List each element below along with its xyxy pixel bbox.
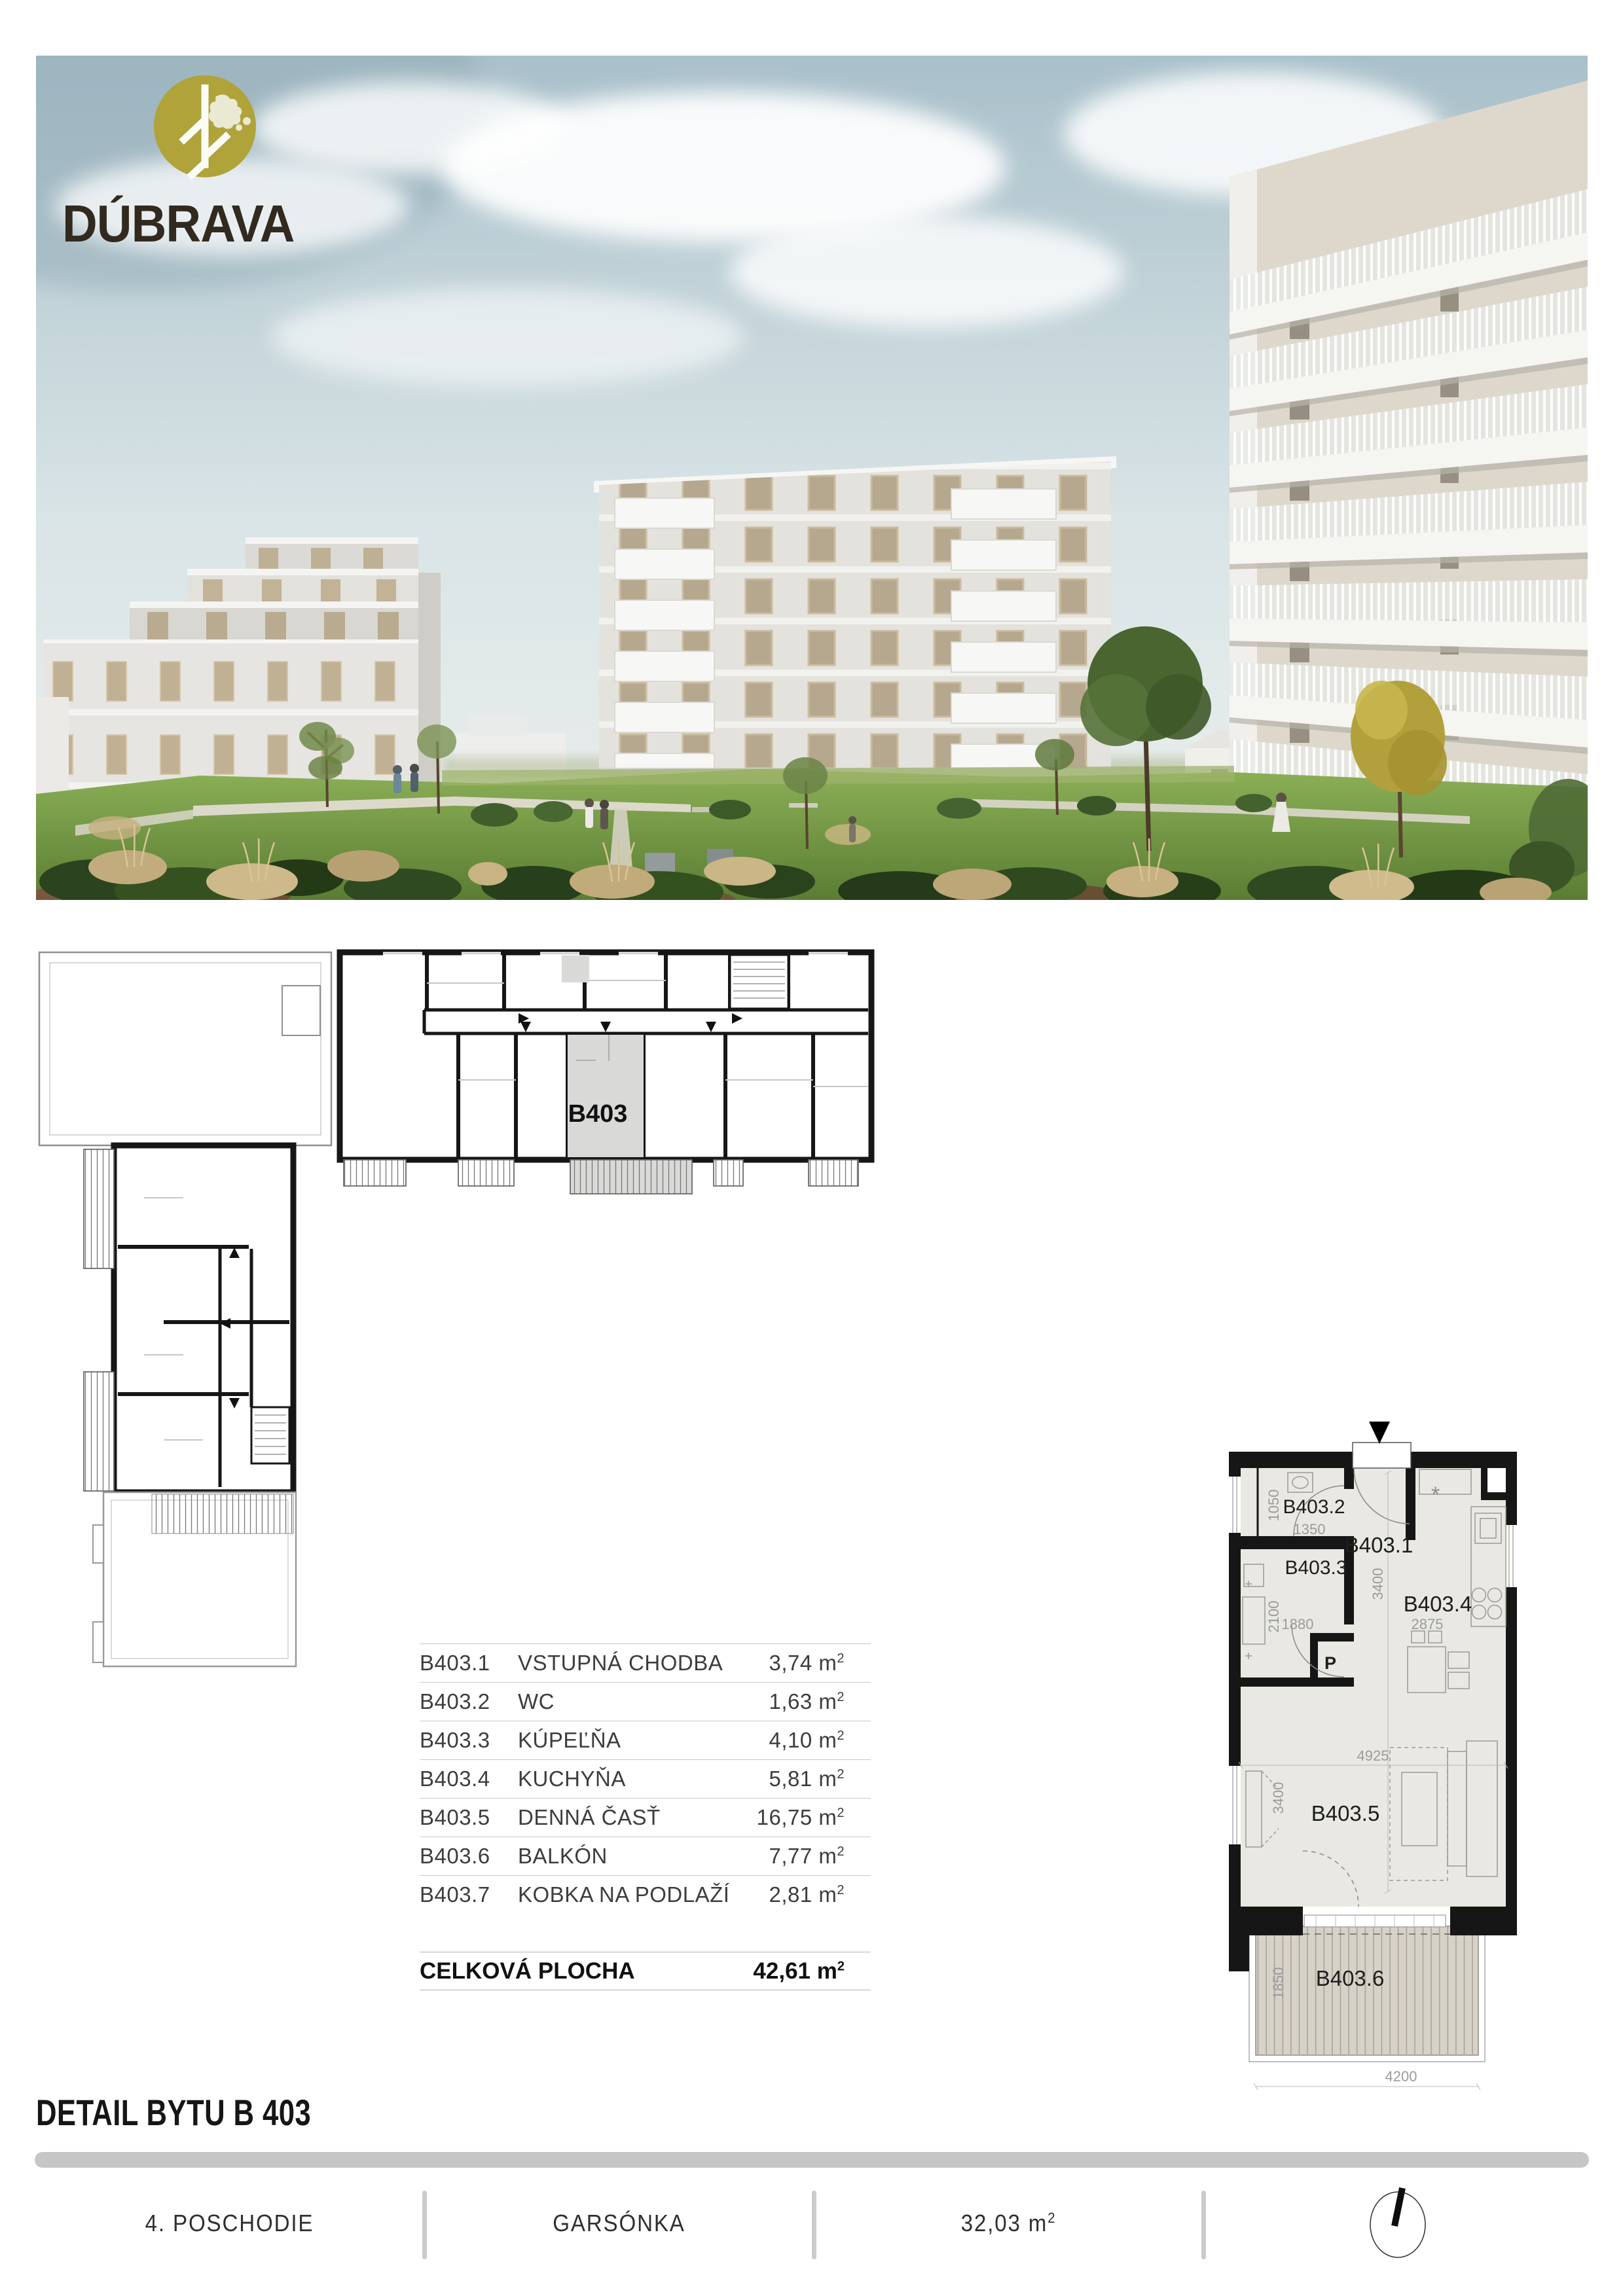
building-side-wing: [84, 1145, 293, 1492]
room-label-closet: P: [1324, 1653, 1336, 1673]
room-code: B403.3: [420, 1728, 518, 1753]
room-code: B403.4: [420, 1767, 518, 1791]
entrance-door: [1353, 1443, 1411, 1468]
room-label-balcony: B403.6: [1316, 1966, 1385, 1990]
room-area: 2,81 m2: [769, 1882, 871, 1907]
unit-label: B403: [568, 1100, 628, 1128]
terrace-outline: [93, 1492, 296, 1666]
balconies: [344, 1160, 858, 1194]
footer-layout-type: GARSÓNKA: [440, 2210, 798, 2237]
room-label-hall: B403.1: [1345, 1533, 1413, 1557]
table-row: B403.5 DENNÁ ČASŤ 16,75 m2: [420, 1798, 871, 1837]
dim-bath-width: 1880: [1282, 1616, 1314, 1632]
table-row: B403.6 BALKÓN 7,77 m2: [420, 1837, 871, 1875]
room-area: 7,77 m2: [769, 1844, 871, 1869]
unit-b403-storage-highlight: [562, 955, 589, 982]
floor-overview-plan: B403: [26, 916, 890, 1676]
table-row: B403.2 WC 1,63 m2: [420, 1682, 871, 1721]
table-row: B403.4 KUCHYŇA 5,81 m2: [420, 1759, 871, 1798]
room-area: 5,81 m2: [769, 1767, 871, 1791]
room-name: KOBKA NA PODLAŽÍ: [518, 1882, 769, 1907]
room-name: VSTUPNÁ CHODBA: [518, 1651, 769, 1676]
total-label: CELKOVÁ PLOCHA: [420, 1958, 753, 1984]
concrete-cube: [645, 853, 675, 874]
brand-wordmark: DÚBRAVA: [62, 195, 294, 253]
room-name: KUCHYŇA: [518, 1767, 769, 1791]
hero-rendering: DÚBRAVA: [36, 56, 1588, 900]
room-area: 4,10 m2: [769, 1728, 871, 1753]
unit-detail-plan: * B403.2 B403.1 B403.3 B403.4 P B403.5 B…: [1208, 1417, 1601, 2091]
bench: [789, 803, 818, 808]
balcony-door-sill: [1304, 1915, 1446, 1927]
footer-divider: [422, 2191, 427, 2259]
dim-balcony-width: 4200: [1385, 2068, 1417, 2085]
room-label-bath: B403.3: [1285, 1557, 1347, 1579]
room-name: KÚPEĽŇA: [518, 1728, 769, 1753]
page-title: DETAIL BYTU B 403: [36, 2091, 311, 2134]
room-label-wc: B403.2: [1283, 1496, 1345, 1518]
footer-floor: 4. POSCHODIE: [50, 2210, 409, 2237]
room-name: BALKÓN: [518, 1844, 769, 1869]
room-code: B403.1: [420, 1651, 518, 1676]
room-area: 16,75 m2: [757, 1805, 871, 1830]
footer-divider: [812, 2191, 816, 2259]
room-area: 1,63 m2: [769, 1689, 871, 1714]
room-area-table: B403.1 VSTUPNÁ CHODBA 3,74 m2 B403.2 WC …: [420, 1643, 871, 1990]
room-code: B403.5: [420, 1805, 518, 1830]
dim-balcony-height: 1850: [1270, 1967, 1286, 2000]
table-row: B403.7 KOBKA NA PODLAŽÍ 2,81 m2: [420, 1875, 871, 1914]
table-row: B403.3 KÚPEĽŇA 4,10 m2: [420, 1721, 871, 1759]
room-name: DENNÁ ČASŤ: [518, 1805, 757, 1830]
footer-area: 32,03 m2: [830, 2210, 1188, 2237]
unit-b403-highlight: [568, 1035, 644, 1157]
divider-bar: [35, 2152, 1589, 2168]
dim-bath-height: 2100: [1266, 1601, 1282, 1633]
dim-living-height: 3400: [1270, 1782, 1286, 1814]
dim-wc-height: 1050: [1266, 1490, 1282, 1522]
balconies: [84, 1149, 114, 1491]
room-code: B403.6: [420, 1844, 518, 1869]
vent-symbol: *: [1431, 1482, 1440, 1507]
table-total-row: CELKOVÁ PLOCHA 42,61 m2: [420, 1952, 871, 1990]
room-label-kitchen: B403.4: [1404, 1592, 1472, 1616]
room-code: B403.2: [420, 1689, 518, 1714]
courtyard-outline: [39, 952, 331, 1145]
room-label-living: B403.5: [1311, 1801, 1380, 1825]
table-row: B403.1 VSTUPNÁ CHODBA 3,74 m2: [420, 1643, 871, 1682]
room-area: 3,74 m2: [769, 1651, 871, 1676]
building-top-wing: B403: [340, 952, 871, 1194]
footer-divider: [1201, 2191, 1206, 2259]
room-code: B403.7: [420, 1882, 518, 1907]
dim-wc-width: 1350: [1294, 1521, 1326, 1537]
entrance-arrow-icon: [1369, 1422, 1390, 1444]
room-name: WC: [518, 1689, 769, 1714]
compass-icon: [1362, 2183, 1434, 2261]
dim-kitchen-width: 2875: [1412, 1616, 1444, 1632]
brochure-page: DÚBRAVA: [0, 0, 1623, 2296]
compass-needle: [1395, 2188, 1402, 2226]
dim-living-width: 4925: [1357, 1748, 1389, 1764]
dim-hall-depth: 3400: [1370, 1568, 1386, 1600]
distant-building: [468, 713, 527, 736]
total-area: 42,61 m2: [753, 1958, 871, 1984]
